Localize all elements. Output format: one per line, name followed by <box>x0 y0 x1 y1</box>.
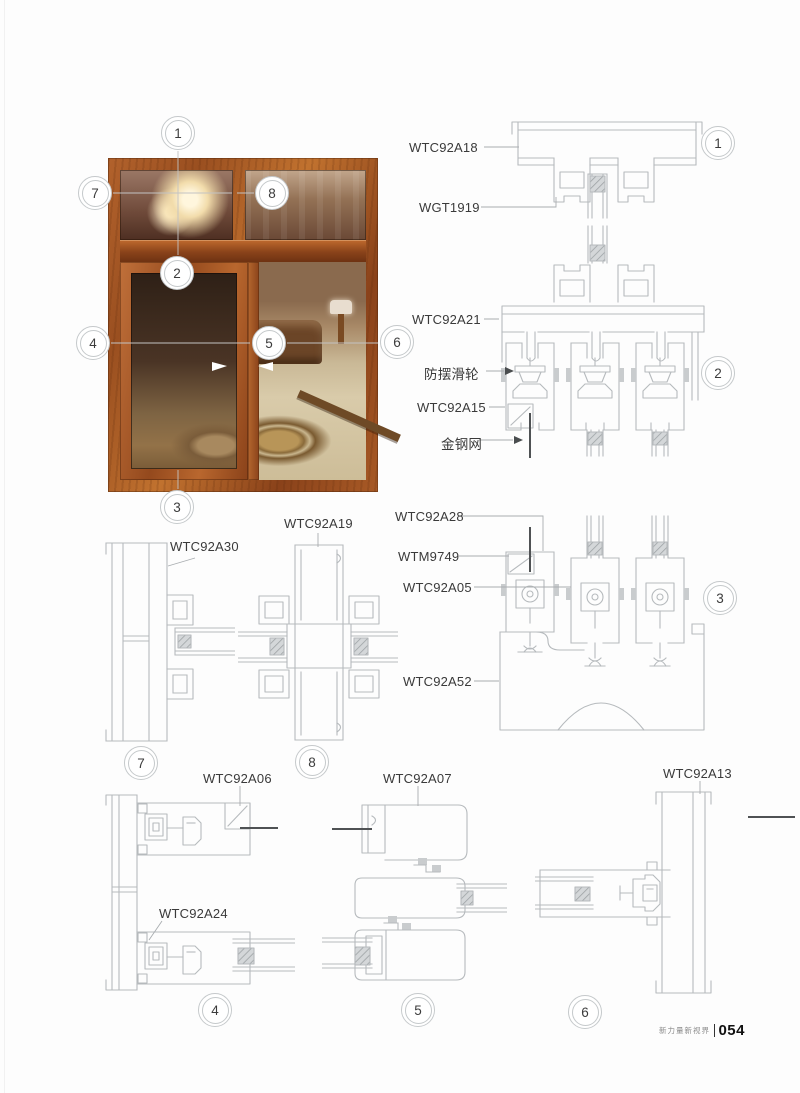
label-wtc92a18: WTC92A18 <box>409 140 478 155</box>
detail-drawing-5-meeting-stiles <box>322 790 507 995</box>
label-wgt1919: WGT1919 <box>419 200 480 215</box>
vertical-section-drawing-head-track-sill <box>498 118 710 736</box>
drawing-callout-1: 1 <box>701 126 735 160</box>
stair-rail-reflection <box>297 390 401 442</box>
photo-callout-4: 4 <box>76 326 110 360</box>
drawing-callout-5: 5 <box>401 993 435 1027</box>
transom-bar <box>120 240 366 262</box>
page-footer: 新力量新视界 054 <box>659 1022 745 1039</box>
label-wtc92a19: WTC92A19 <box>284 516 353 531</box>
lamp-shade <box>330 300 352 314</box>
transom-pane-left-chandelier <box>120 170 233 240</box>
drawing-callout-4: 4 <box>198 993 232 1027</box>
label-wtc92a24: WTC92A24 <box>159 906 228 921</box>
label-wtc92a05: WTC92A05 <box>403 580 472 595</box>
photo-callout-5: 5 <box>252 326 286 360</box>
right-sash-stile <box>248 262 259 480</box>
left-sliding-sash <box>120 262 248 480</box>
photo-callout-2: 2 <box>160 256 194 290</box>
label-wtc92a21: WTC92A21 <box>412 312 481 327</box>
label-wtc92a07: WTC92A07 <box>383 771 452 786</box>
photo-callout-1: 1 <box>161 116 195 150</box>
footer-divider <box>714 1024 716 1037</box>
footer-page-number: 054 <box>718 1022 745 1039</box>
drawing-callout-3: 3 <box>703 581 737 615</box>
lamp-base <box>338 314 344 344</box>
label-wtc92a30: WTC92A30 <box>170 539 239 554</box>
detail-drawing-8-mullion <box>238 520 398 746</box>
photo-callout-3: 3 <box>160 490 194 524</box>
label-wtc92a52: WTC92A52 <box>403 674 472 689</box>
window-photo <box>108 158 378 492</box>
drawing-callout-8: 8 <box>295 745 329 779</box>
drawing-callout-6: 6 <box>568 995 602 1029</box>
detail-drawing-7-jamb <box>105 538 235 746</box>
detail-drawing-6-jamb <box>535 785 750 1000</box>
photo-callout-7: 7 <box>78 176 112 210</box>
page-edge-line <box>4 0 5 1093</box>
photo-callout-8: 8 <box>255 176 289 210</box>
catalog-page: WTC92A18 WGT1919 WTC92A21 防摆滑轮 WTC92A15 … <box>0 0 800 1093</box>
label-steel-mesh: 金钢网 <box>441 433 482 453</box>
label-wtc92a13: WTC92A13 <box>663 766 732 781</box>
label-anti-sway-roller: 防摆滑轮 <box>424 363 479 383</box>
detail-drawing-4-jamb-lock <box>105 790 295 995</box>
label-wtc92a28: WTC92A28 <box>395 509 464 524</box>
label-wtc92a15: WTC92A15 <box>417 400 486 415</box>
label-wtm9749: WTM9749 <box>398 549 459 564</box>
label-wtc92a06: WTC92A06 <box>203 771 272 786</box>
lower-left-glass-scene <box>131 273 237 469</box>
drawing-callout-7: 7 <box>124 746 158 780</box>
photo-callout-6: 6 <box>380 325 414 359</box>
drawing-callout-2: 2 <box>701 356 735 390</box>
footer-brand-text: 新力量新视界 <box>659 1025 710 1036</box>
